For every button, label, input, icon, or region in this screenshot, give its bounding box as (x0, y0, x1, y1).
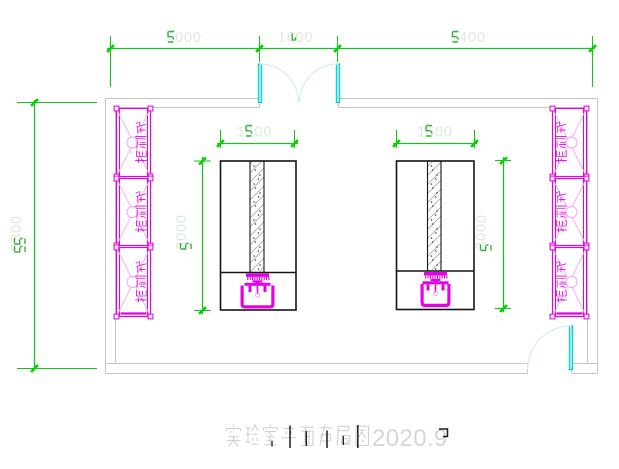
svg-text:5300: 5300 (9, 215, 25, 250)
svg-text:1500: 1500 (237, 125, 272, 141)
svg-text:5400: 5400 (450, 30, 485, 46)
svg-text:5000: 5000 (166, 30, 201, 46)
svg-text:1500: 1500 (417, 125, 452, 141)
svg-text:3000: 3000 (174, 214, 190, 249)
svg-text:2020.9: 2020.9 (372, 425, 448, 452)
